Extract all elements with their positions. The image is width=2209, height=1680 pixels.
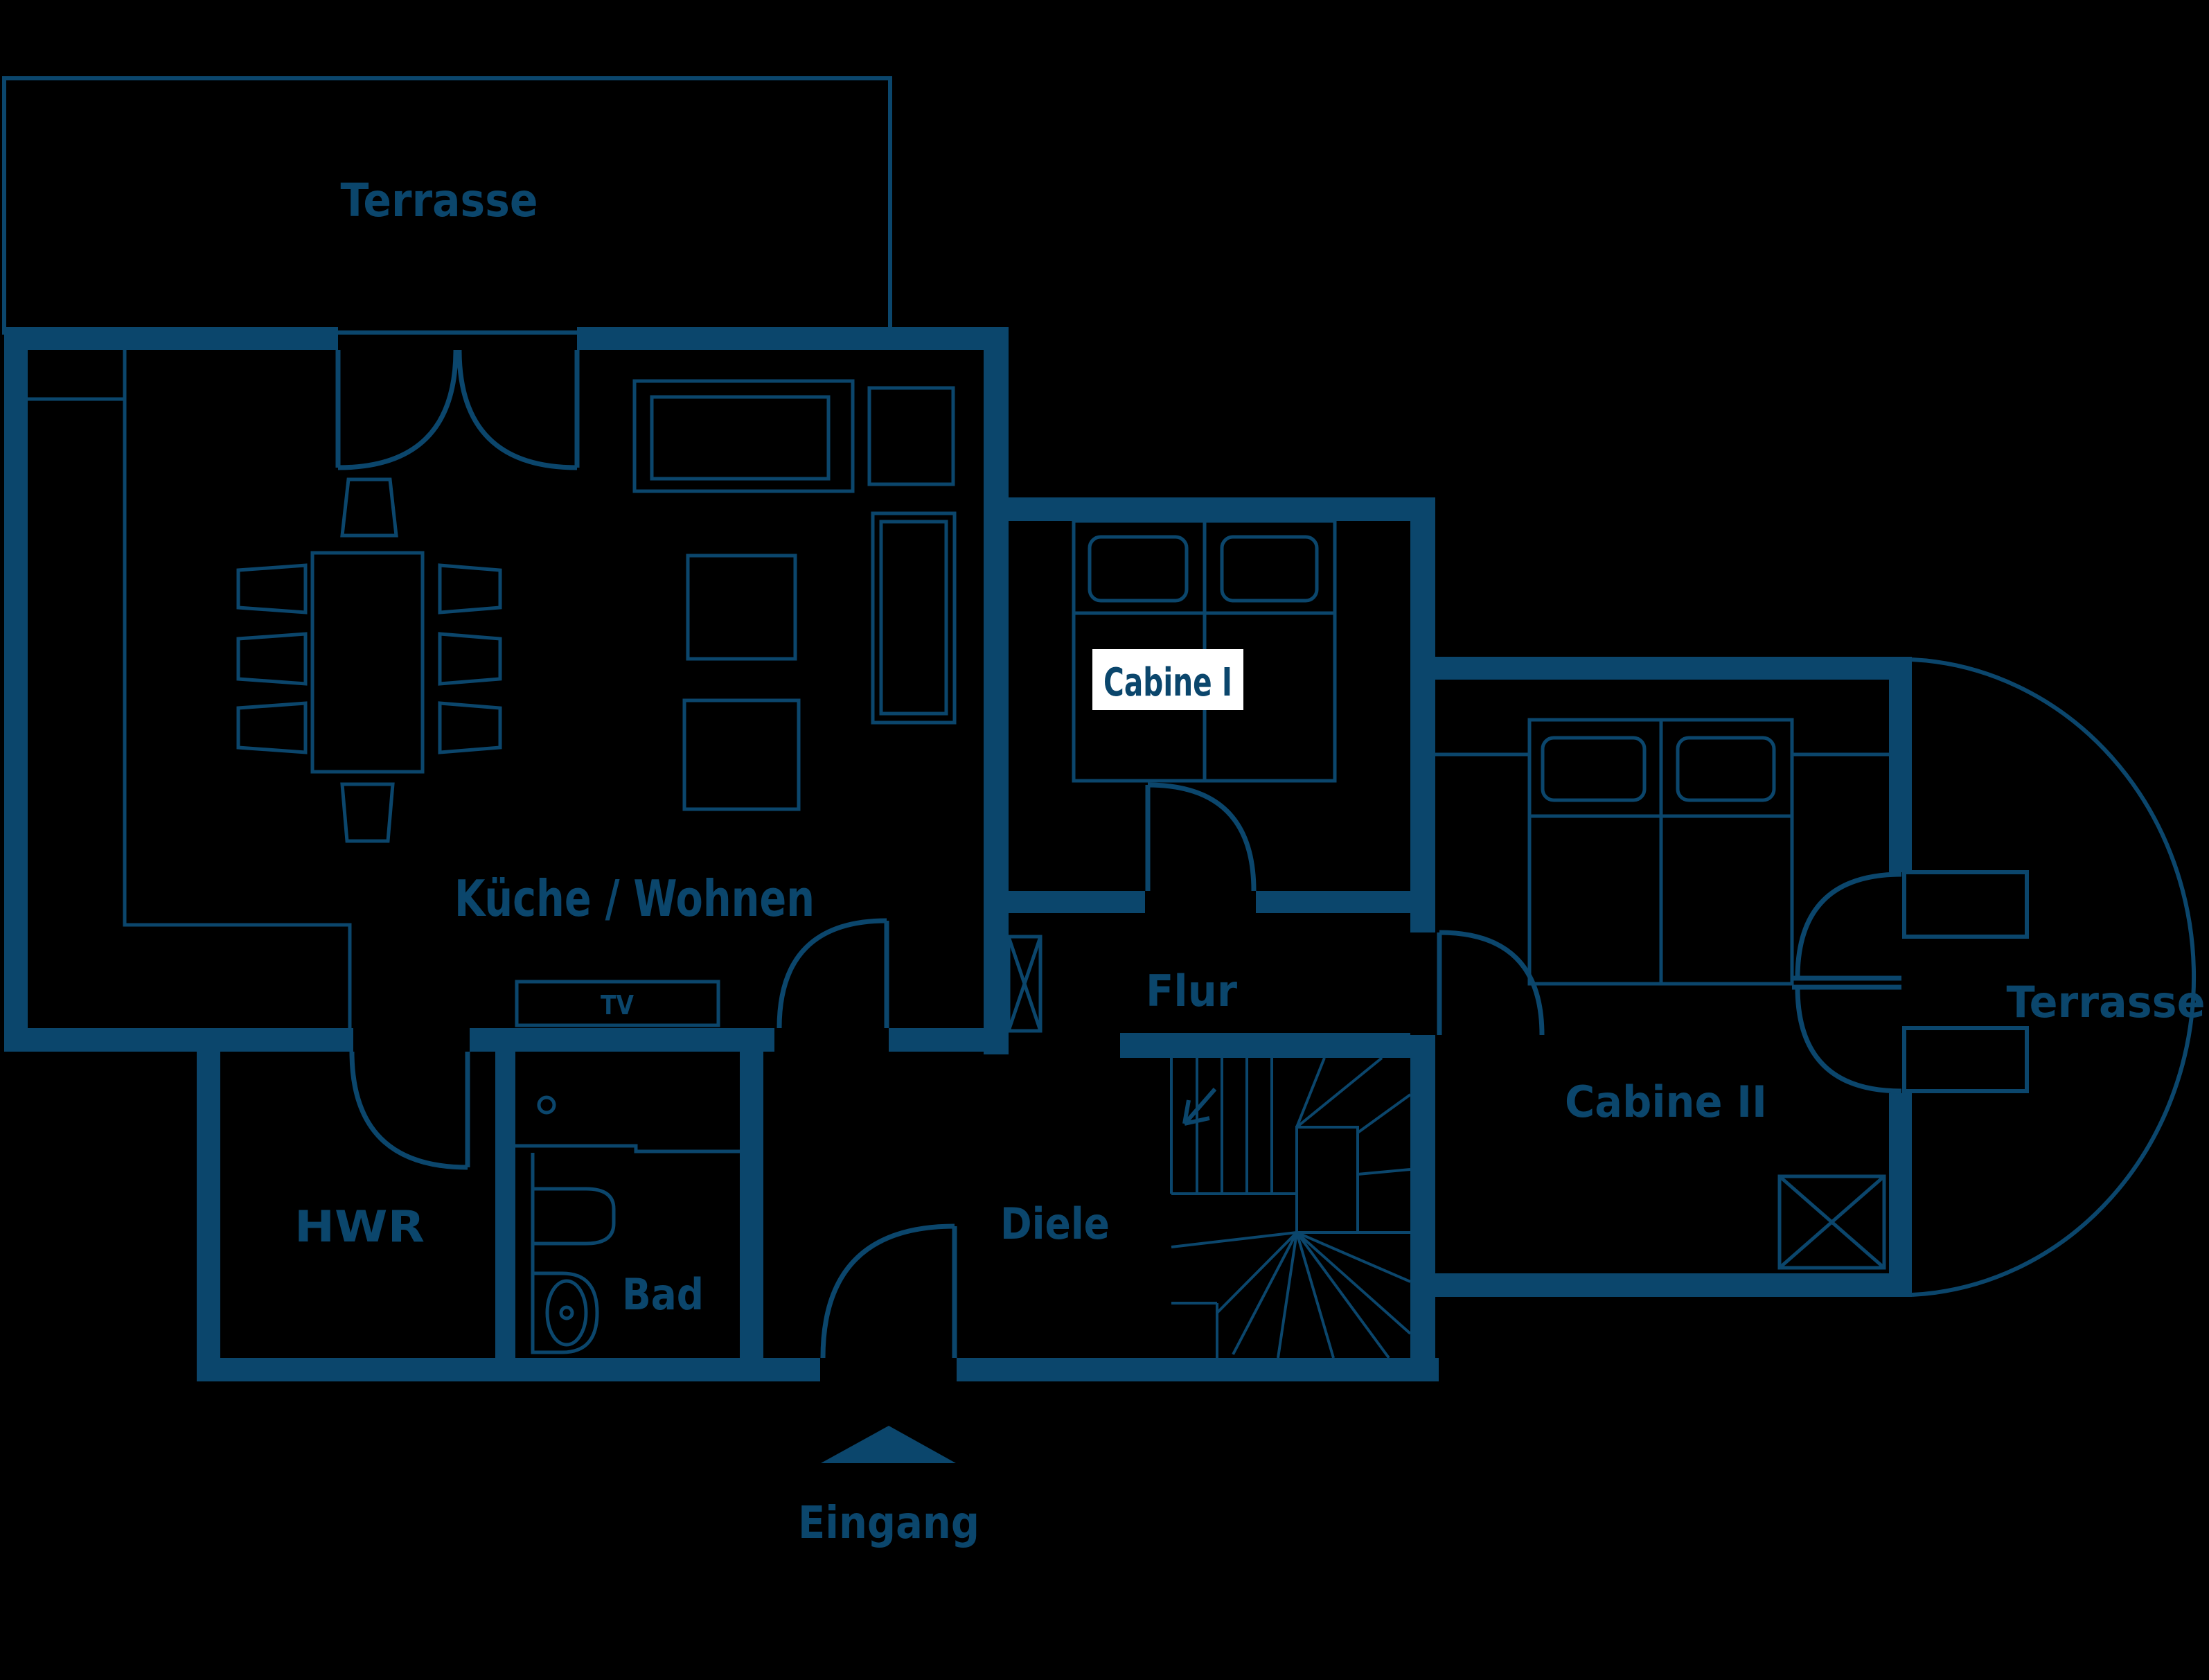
label-foyer: Diele [1000,1199,1110,1249]
wall-cabin2-top [1410,657,1912,680]
wall-east-lower [1410,1035,1435,1372]
door-cabin2-icon [1439,932,1542,1035]
walls [4,327,1912,1381]
wall-hwr-bad [495,1052,515,1358]
stairs-icon [1171,1058,1410,1358]
floor-plan: Terrasse Küche / Wohnen Cabine I Cabine … [0,0,2209,1680]
wall-cabin1-top [1009,497,1435,521]
wall-mid-band-3 [889,1028,1009,1052]
label-utility: HWR [294,1201,425,1252]
wall-cabin1-bottom-right [1256,891,1435,913]
wall-cabin2-right-upper [1889,657,1912,872]
label-hallway: Flur [1146,966,1237,1016]
wall-east-upper [1410,497,1435,932]
label-cabin2: Cabine II [1565,1077,1767,1127]
dining-chairs-icon [238,479,500,841]
label-cabin1-highlight[interactable]: Cabine I [1092,649,1243,710]
door-living-foyer-icon [779,921,887,1028]
wall-cabin1-bottom-left [1009,891,1145,913]
shaft-x-icon [1009,937,1040,1031]
wall-cabin2-right-lower [1889,1093,1912,1297]
sofa-icon [635,381,955,809]
entrance-arrow-icon [821,1426,956,1463]
label-cabin1: Cabine I [1103,660,1232,705]
door-entrance-icon [823,1226,955,1358]
wall-top-right [577,327,1009,350]
door-cabin1-icon [1148,785,1254,891]
label-kitchen-living: Küche / Wohnen [454,869,815,928]
wall-hwr-left [197,1028,220,1381]
wall-mid-band-2 [470,1028,774,1052]
wall-top-left [4,327,338,350]
dining-table-icon [312,553,423,772]
french-door-terrace-right-icon [1792,874,1901,1091]
label-tv: TV [601,990,635,1020]
shower-x-icon [1780,1176,1884,1268]
double-bed-cabin2-icon [1435,720,1889,984]
floor-plan-page: Terrasse Küche / Wohnen Cabine I Cabine … [0,0,2209,1680]
wall-cabin2-bottom [1410,1273,1912,1297]
toilet-icon [533,1273,597,1352]
kitchen-counter-icon [28,350,350,1028]
label-bathroom: Bad [622,1269,704,1320]
label-terrace-right: Terrasse [2007,977,2206,1027]
french-door-terrace-top-icon [338,350,577,468]
wall-bottom-right [957,1358,1439,1381]
wall-west [4,327,28,1052]
door-hwr-icon [352,1052,468,1167]
bathtub-icon [533,1189,614,1244]
wall-center-vertical [984,327,1009,1054]
label-terrace-top: Terrasse [341,174,538,227]
sink-icon [539,1097,554,1113]
wall-bad-right [740,1052,763,1358]
wall-bottom-left [197,1358,820,1381]
wall-stairs-top [1120,1033,1410,1058]
wall-mid-band-1 [4,1028,353,1052]
stairs-direction-arrow-icon [1185,1089,1215,1124]
label-entrance: Eingang [798,1498,979,1549]
